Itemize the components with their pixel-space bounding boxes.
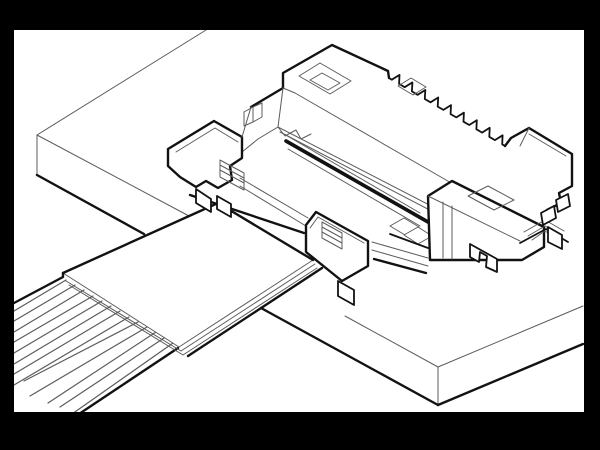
right-end-inner-lines [520, 128, 566, 156]
slot-shadow-band [286, 141, 428, 222]
cable-conductor-line [14, 296, 93, 342]
slot-upper-line [284, 134, 420, 213]
front-left-block-foot [338, 281, 354, 305]
pcb-front-top-edge-left [345, 316, 438, 367]
left-block-wall-join [242, 107, 251, 137]
right-end-solder-tabs [541, 194, 570, 225]
frame-bar-top [0, 0, 600, 30]
cable-conductor-line [14, 317, 129, 385]
rear-wall-cutout-1-inner [310, 73, 340, 90]
cable-conductor-line [24, 322, 138, 381]
frame-bar-bottom [0, 412, 600, 450]
pcb-front-bottom-edge-left [261, 308, 438, 405]
slot-lower-line [288, 149, 420, 226]
rim-left-lines [240, 178, 308, 226]
rear-wall-outline-left [251, 45, 389, 107]
pcb-front-left-top-edge [37, 135, 189, 216]
rim-mid-bottom-edge [374, 259, 426, 273]
cable-conductor-line [14, 301, 102, 353]
cable-top-edge [14, 273, 63, 303]
frame-bar-left [0, 0, 14, 450]
illustration-stage [0, 0, 600, 450]
left-block-outline [168, 121, 242, 188]
front-right-block-side-foot [548, 227, 562, 249]
opening-left-join [242, 127, 278, 152]
frame-bar-right [584, 0, 600, 450]
opening-left-step [278, 127, 311, 139]
rear-wall-left-inner-edge [278, 88, 283, 127]
connector-illustration [0, 0, 600, 450]
front-right-block-outline [428, 181, 544, 260]
cable-conductor-line [14, 285, 75, 321]
pcb-front-bottom-edge-right [438, 344, 583, 405]
cable-conductor-line [14, 306, 111, 364]
contact-teeth [389, 75, 505, 146]
contact-teeth-path [389, 75, 505, 146]
cable-conductor-line [14, 311, 120, 374]
rear-wall-cutout-1 [299, 63, 351, 94]
pcb-front-top-edge-right [438, 306, 583, 367]
